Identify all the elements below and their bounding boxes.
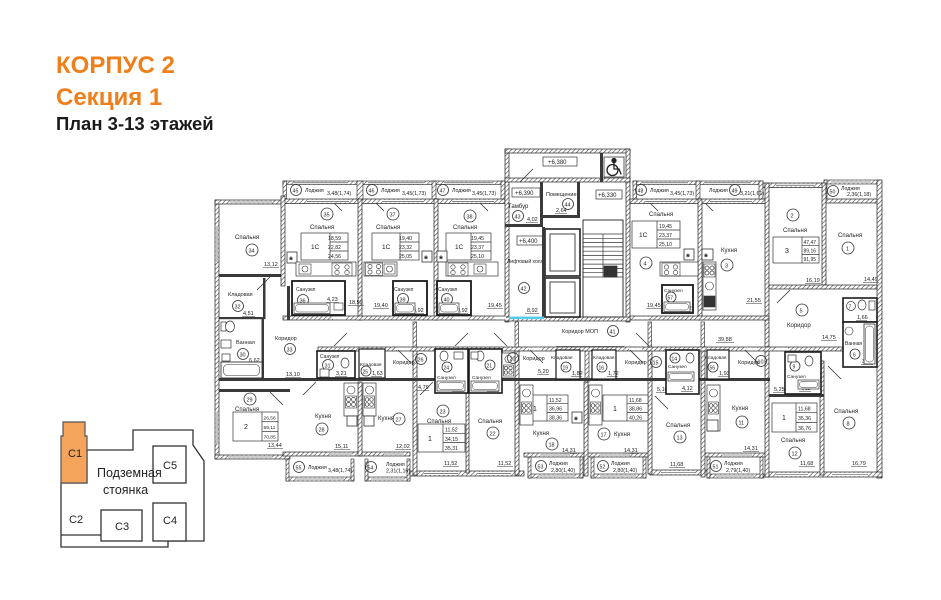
svg-text:14,49: 14,49: [864, 277, 878, 283]
svg-text:1: 1: [613, 406, 617, 413]
svg-text:1: 1: [533, 406, 537, 413]
svg-text:2,36(1,18): 2,36(1,18): [847, 192, 871, 198]
svg-text:2,31(1,16): 2,31(1,16): [386, 469, 410, 475]
svg-text:35: 35: [324, 213, 330, 219]
svg-text:19,45: 19,45: [659, 224, 672, 230]
svg-text:19,40: 19,40: [399, 236, 412, 242]
svg-text:1С: 1С: [639, 232, 648, 239]
svg-text:3: 3: [725, 264, 728, 270]
svg-text:14,31: 14,31: [624, 448, 638, 454]
svg-text:+6,390: +6,390: [515, 191, 534, 197]
svg-text:13,44: 13,44: [268, 443, 282, 449]
svg-text:Лоджия: Лоджия: [549, 461, 568, 467]
svg-text:Лоджия: Лоджия: [724, 461, 743, 467]
svg-text:2,79(1,40): 2,79(1,40): [726, 468, 750, 474]
svg-text:Коридор: Коридор: [787, 323, 811, 329]
svg-text:11,68: 11,68: [670, 462, 683, 468]
svg-text:13,12: 13,12: [264, 262, 278, 268]
svg-text:Лоджия: Лоджия: [381, 188, 400, 194]
svg-text:стоянка: стоянка: [103, 483, 148, 497]
svg-text:31: 31: [325, 364, 331, 370]
svg-text:14: 14: [672, 357, 678, 363]
svg-text:1,63: 1,63: [372, 371, 383, 377]
svg-text:3,48(1,74): 3,48(1,74): [327, 191, 351, 197]
svg-text:+6,330: +6,330: [598, 193, 617, 199]
svg-text:5,25: 5,25: [774, 387, 785, 393]
svg-text:37: 37: [390, 213, 396, 219]
svg-text:36,96: 36,96: [549, 407, 562, 413]
svg-text:40: 40: [444, 298, 450, 304]
svg-text:50: 50: [830, 190, 836, 196]
svg-text:27: 27: [396, 418, 402, 424]
svg-text:Кладовая: Кладовая: [228, 292, 253, 298]
svg-text:18: 18: [549, 443, 555, 449]
svg-text:53: 53: [538, 465, 544, 471]
svg-text:25,05: 25,05: [399, 254, 412, 260]
svg-text:*: *: [439, 255, 443, 266]
svg-text:41: 41: [610, 330, 616, 336]
svg-text:12: 12: [792, 452, 798, 458]
svg-text:21: 21: [487, 364, 493, 370]
svg-text:2,64: 2,64: [556, 208, 567, 214]
svg-text:Помещение: Помещение: [546, 192, 577, 198]
svg-text:7: 7: [849, 305, 852, 311]
svg-text:54: 54: [368, 466, 374, 472]
svg-text:26: 26: [418, 358, 424, 364]
svg-text:2,80(1,40): 2,80(1,40): [551, 468, 575, 474]
svg-text:8,92: 8,92: [527, 308, 538, 314]
svg-text:43: 43: [515, 215, 521, 221]
svg-text:19: 19: [563, 366, 569, 372]
svg-text:Кухня: Кухня: [315, 414, 331, 420]
svg-text:32: 32: [235, 305, 241, 311]
svg-text:11,52: 11,52: [444, 461, 457, 467]
svg-text:11,52: 11,52: [498, 461, 511, 467]
svg-text:24,56: 24,56: [328, 254, 341, 260]
svg-text:Коридор МОП: Коридор МОП: [562, 329, 598, 335]
svg-text:1: 1: [782, 415, 786, 422]
svg-text:1С: 1С: [382, 244, 391, 251]
svg-text:Санузел: Санузел: [787, 374, 806, 380]
svg-text:35,36: 35,36: [798, 416, 811, 422]
svg-text:40,26: 40,26: [629, 415, 642, 421]
svg-text:15: 15: [653, 361, 659, 367]
svg-text:Санузел: Санузел: [668, 364, 687, 370]
svg-text:Кладовая: Кладовая: [705, 355, 727, 361]
svg-text:34,15: 34,15: [445, 437, 458, 443]
svg-text:+6,400: +6,400: [519, 239, 538, 245]
svg-text:Спальня: Спальня: [649, 212, 673, 218]
svg-text:Спальня: Спальня: [376, 225, 400, 231]
svg-text:С4: С4: [163, 515, 177, 527]
svg-text:3,21: 3,21: [336, 371, 347, 377]
svg-text:Кладовая: Кладовая: [593, 355, 615, 361]
svg-text:23,37: 23,37: [471, 245, 484, 251]
svg-text:Спальня: Спальня: [781, 438, 805, 444]
svg-text:23,37: 23,37: [659, 233, 672, 239]
svg-text:Кухня: Кухня: [732, 406, 748, 412]
svg-text:6: 6: [853, 353, 856, 359]
svg-text:28: 28: [319, 428, 325, 434]
svg-text:Кухня: Кухня: [533, 431, 549, 437]
svg-text:Санузел: Санузел: [472, 375, 491, 381]
svg-text:4,02: 4,02: [527, 217, 538, 223]
svg-text:39,88: 39,88: [718, 337, 732, 343]
svg-text:3,21(1,61): 3,21(1,61): [740, 191, 764, 197]
svg-text:*: *: [289, 256, 293, 267]
svg-text:22,82: 22,82: [328, 245, 341, 251]
svg-text:30: 30: [240, 353, 246, 359]
svg-text:11,52: 11,52: [549, 398, 562, 404]
svg-text:23: 23: [440, 410, 446, 416]
svg-text:Санузел: Санузел: [296, 287, 316, 293]
svg-text:Кухня: Кухня: [721, 248, 737, 254]
svg-text:Тамбур: Тамбур: [508, 204, 529, 210]
svg-text:38: 38: [467, 215, 473, 221]
svg-text:4: 4: [644, 262, 647, 268]
svg-text:46: 46: [369, 189, 375, 195]
svg-text:Лифтовый холл: Лифтовый холл: [507, 258, 544, 265]
svg-text:25: 25: [363, 370, 369, 376]
svg-text:23,32: 23,32: [399, 245, 412, 251]
svg-text:+6,380: +6,380: [548, 160, 567, 166]
svg-text:49: 49: [732, 189, 738, 195]
svg-text:16,19: 16,19: [806, 278, 820, 284]
svg-text:5,20: 5,20: [538, 369, 549, 375]
svg-text:Лоджия: Лоджия: [611, 461, 630, 467]
svg-text:*: *: [574, 416, 578, 427]
svg-text:10: 10: [758, 360, 764, 366]
svg-text:55: 55: [296, 466, 302, 472]
svg-text:Лоджия: Лоджия: [386, 462, 405, 468]
svg-text:19,45: 19,45: [488, 303, 502, 309]
svg-text:17: 17: [601, 433, 607, 439]
svg-text:2: 2: [244, 424, 248, 431]
svg-text:19,40: 19,40: [374, 303, 388, 309]
svg-text:*: *: [704, 253, 708, 264]
svg-text:9: 9: [793, 365, 796, 371]
svg-text:1С: 1С: [311, 244, 320, 251]
svg-text:13: 13: [677, 436, 683, 442]
svg-text:Коридор: Коридор: [393, 360, 415, 366]
svg-text:57: 57: [668, 296, 674, 302]
svg-text:52: 52: [600, 465, 606, 471]
svg-text:Спальня: Спальня: [834, 409, 858, 415]
svg-text:11,52: 11,52: [445, 428, 458, 434]
svg-text:25,10: 25,10: [471, 254, 484, 260]
svg-text:25,10: 25,10: [659, 242, 672, 248]
svg-text:1,72: 1,72: [608, 371, 619, 377]
svg-text:Лоджия: Лоджия: [709, 188, 728, 194]
svg-text:16: 16: [599, 366, 605, 372]
svg-text:С2: С2: [69, 514, 83, 526]
svg-text:1,93: 1,93: [719, 371, 730, 377]
svg-text:18,59: 18,59: [349, 300, 363, 306]
svg-text:Кухня: Кухня: [378, 416, 394, 422]
svg-text:42: 42: [521, 287, 527, 293]
svg-text:1: 1: [428, 436, 432, 443]
svg-text:38,36: 38,36: [549, 415, 562, 421]
svg-text:3: 3: [785, 248, 789, 255]
svg-text:91,95: 91,95: [804, 257, 817, 263]
svg-text:Лоджия: Лоджия: [650, 188, 669, 194]
svg-text:Санузел: Санузел: [320, 354, 340, 360]
svg-text:51: 51: [713, 465, 719, 471]
svg-text:1С: 1С: [455, 244, 464, 251]
svg-text:Кладовая: Кладовая: [551, 355, 573, 361]
svg-text:1,66: 1,66: [857, 315, 868, 321]
svg-text:18,59: 18,59: [328, 236, 341, 242]
svg-text:Санузел: Санузел: [437, 375, 456, 381]
svg-text:89,16: 89,16: [804, 249, 817, 255]
svg-text:69,11: 69,11: [264, 425, 276, 431]
svg-text:Спальня: Спальня: [838, 233, 862, 239]
svg-text:4,12: 4,12: [682, 386, 693, 392]
svg-text:Спальня: Спальня: [453, 225, 477, 231]
svg-text:11: 11: [739, 421, 745, 427]
svg-text:Спальня: Спальня: [235, 235, 259, 241]
svg-text:38,86: 38,86: [629, 407, 642, 413]
svg-text:1: 1: [846, 247, 849, 253]
svg-text:26,56: 26,56: [264, 416, 277, 422]
svg-text:Коридор: Коридор: [275, 336, 297, 342]
svg-text:2,80(1,40): 2,80(1,40): [613, 468, 637, 474]
svg-text:С3: С3: [115, 521, 129, 533]
svg-text:56: 56: [710, 366, 716, 372]
svg-text:11,68: 11,68: [629, 398, 642, 404]
svg-text:11,68: 11,68: [798, 407, 811, 413]
svg-text:70,85: 70,85: [264, 435, 277, 441]
svg-text:19,45: 19,45: [471, 236, 484, 242]
svg-text:15,11: 15,11: [335, 444, 348, 450]
svg-text:39: 39: [400, 298, 406, 304]
svg-text:1,82: 1,82: [572, 371, 583, 377]
svg-text:47,47: 47,47: [804, 240, 817, 246]
svg-text:Коридор: Коридор: [738, 360, 760, 366]
svg-text:С5: С5: [163, 460, 177, 472]
svg-text:21,55: 21,55: [747, 298, 761, 304]
svg-text:Спальня: Спальня: [478, 419, 502, 425]
svg-text:45: 45: [293, 189, 299, 195]
svg-text:22: 22: [490, 432, 496, 438]
svg-text:12,02: 12,02: [396, 444, 410, 450]
svg-text:14,31: 14,31: [744, 446, 758, 452]
svg-text:Подземная: Подземная: [97, 466, 162, 480]
svg-text:34: 34: [249, 249, 255, 255]
svg-text:Лоджия: Лоджия: [305, 188, 324, 194]
svg-text:36,76: 36,76: [798, 426, 811, 432]
svg-text:24: 24: [444, 366, 450, 372]
svg-text:2: 2: [791, 214, 794, 220]
svg-text:Лоджия: Лоджия: [308, 465, 327, 471]
svg-text:35,31: 35,31: [445, 446, 458, 452]
svg-text:Коридор: Коридор: [625, 360, 647, 366]
svg-text:3,45(1,73): 3,45(1,73): [402, 191, 426, 197]
svg-text:14,75: 14,75: [822, 335, 836, 341]
svg-text:Спальня: Спальня: [310, 225, 334, 231]
svg-text:47: 47: [440, 189, 446, 195]
svg-text:*: *: [424, 255, 428, 266]
svg-text:Ванная: Ванная: [236, 340, 255, 346]
svg-text:Санузел: Санузел: [438, 287, 458, 293]
svg-text:Лоджия: Лоджия: [452, 188, 471, 194]
svg-text:5: 5: [800, 309, 803, 315]
svg-text:29: 29: [247, 398, 253, 404]
svg-text:Спальня: Спальня: [783, 228, 807, 234]
svg-text:11,68: 11,68: [800, 461, 813, 467]
svg-text:Кухня: Кухня: [614, 432, 630, 438]
svg-text:3,48(1,74): 3,48(1,74): [328, 468, 352, 474]
svg-text:14,31: 14,31: [562, 448, 576, 454]
svg-text:Спальня: Спальня: [666, 423, 690, 429]
svg-text:20: 20: [510, 357, 516, 363]
svg-text:13,10: 13,10: [286, 372, 300, 378]
svg-text:3,45(1,73): 3,45(1,73): [472, 191, 496, 197]
svg-text:19,45: 19,45: [647, 303, 661, 309]
svg-text:8: 8: [847, 422, 850, 428]
svg-text:33: 33: [287, 348, 293, 354]
svg-text:4,23: 4,23: [327, 297, 338, 303]
svg-text:С1: С1: [68, 448, 82, 460]
svg-text:16,79: 16,79: [852, 461, 866, 467]
svg-text:Санузел: Санузел: [394, 287, 414, 293]
svg-text:48: 48: [638, 189, 644, 195]
svg-text:Ванная: Ванная: [845, 341, 862, 347]
svg-text:3,45(1,73): 3,45(1,73): [670, 191, 694, 197]
svg-text:4,51: 4,51: [243, 311, 254, 317]
